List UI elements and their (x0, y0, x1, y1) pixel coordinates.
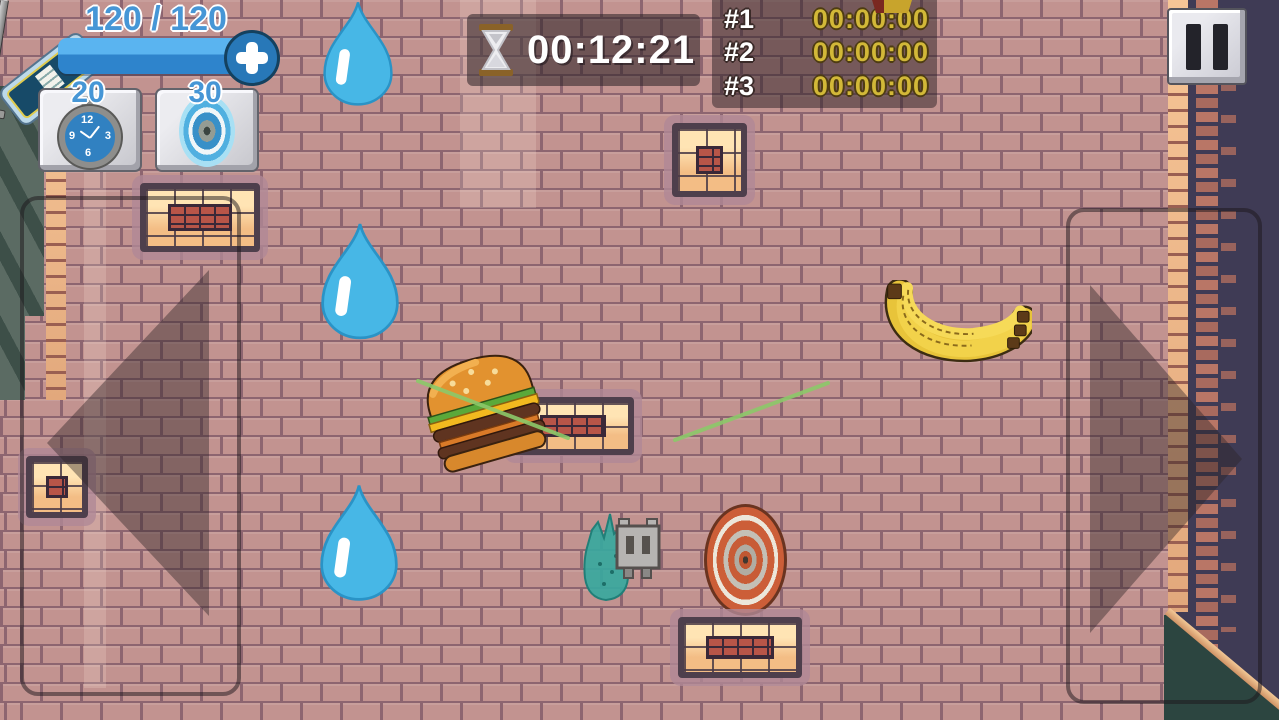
time-value: 00:00:00 (813, 4, 929, 35)
leaderboard-row: #2 00:00:00 (724, 38, 929, 68)
pause-icon (1213, 24, 1228, 70)
rank-label: #1 (724, 4, 754, 35)
health-value: 120 / 120 (60, 0, 252, 39)
clock-hand (89, 126, 100, 139)
clock-numeral: 3 (105, 131, 111, 142)
bananas (876, 280, 1032, 370)
target (704, 504, 787, 616)
pause-button[interactable] (1167, 8, 1247, 85)
left-move-control[interactable] (20, 196, 241, 696)
portal-count: 30 (155, 76, 255, 110)
rank-label: #3 (724, 71, 754, 102)
leaderboard-row: #3 00:00:00 (724, 71, 929, 101)
crown-icon (872, 0, 912, 13)
timer-panel: 00:12:21 (467, 14, 700, 86)
water-drop (318, 0, 398, 106)
time-value: 00:00:00 (813, 71, 929, 102)
clock-numeral: 9 (69, 131, 75, 142)
player-robot (612, 518, 664, 580)
clock-hand (80, 130, 91, 139)
hourglass-icon (477, 24, 515, 76)
clock-numeral: 6 (85, 148, 91, 159)
health-bar (58, 38, 252, 74)
platform (678, 617, 802, 678)
right-move-control[interactable] (1066, 208, 1262, 704)
water-drop (319, 213, 401, 348)
right-arrow-icon (1090, 285, 1242, 633)
rank-label: #2 (724, 37, 754, 68)
platform (672, 123, 747, 197)
water-drop (318, 473, 400, 611)
stopwatch-count: 20 (38, 76, 138, 110)
leaderboard-panel: #1 00:00:00 #2 00:00:00 #3 00:00:00 (712, 0, 937, 108)
timer-value: 00:12:21 (527, 28, 695, 73)
left-arrow-icon (47, 270, 209, 616)
clock-numeral: 12 (81, 115, 93, 126)
time-value: 00:00:00 (813, 37, 929, 68)
game-screen: 120 / 120 12 3 6 9 20 30 00:12:21 (0, 0, 1279, 720)
pause-icon (1186, 24, 1201, 70)
stopwatch-icon: 12 3 6 9 (59, 106, 121, 168)
